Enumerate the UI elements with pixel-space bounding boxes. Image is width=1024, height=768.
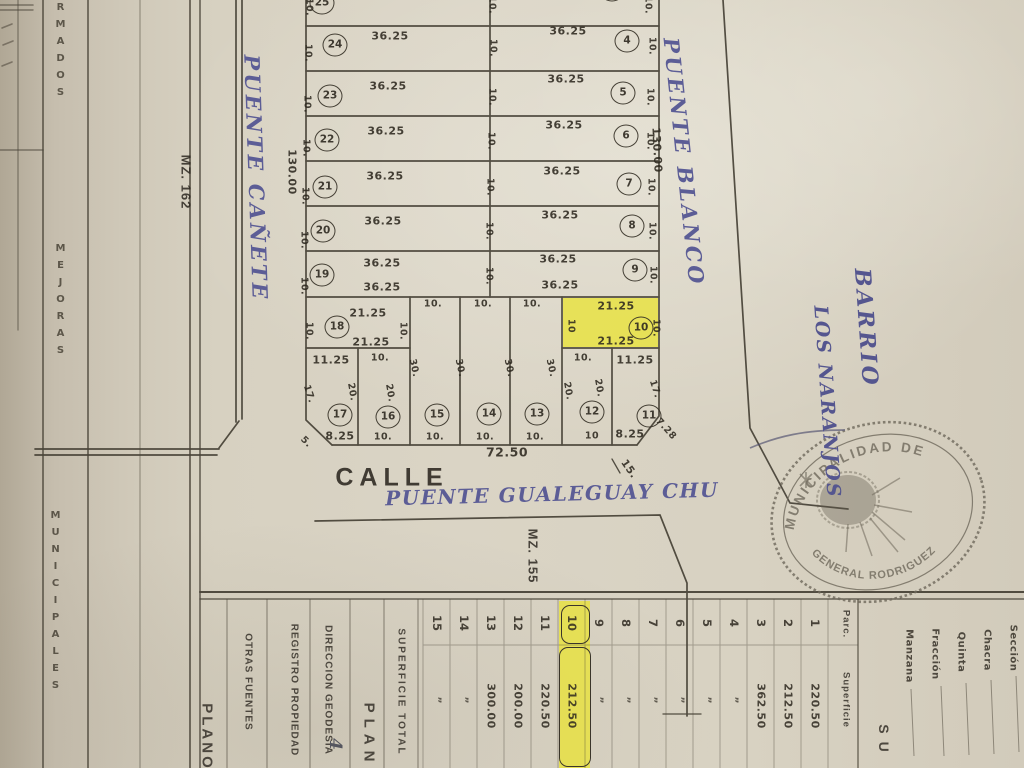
table-superficie-value-3: 362.50 <box>755 683 768 728</box>
form-label-direccion-geodesia: DIRECCION GEODESIA <box>323 625 334 755</box>
dimension-label: 8.25 <box>325 430 354 443</box>
table-parc-number-5: 5 <box>700 619 714 627</box>
dimension-label: 36.25 <box>541 209 578 222</box>
dimension-label: 10. <box>487 0 498 14</box>
svg-text:GENERAL RODRIGUEZ: GENERAL RODRIGUEZ <box>807 514 942 601</box>
table-superficie-value-5: ” <box>701 696 714 703</box>
dimension-label: 10. <box>398 322 409 340</box>
table-parc-number-10: 10 <box>565 615 579 631</box>
table-superficie-value-6: ” <box>674 696 687 703</box>
parcel-number-22: 22 <box>315 129 340 152</box>
parcel-number-3: 3 <box>600 0 625 2</box>
dimension-label: 17. <box>647 379 663 400</box>
form-handwritten-note: 4 <box>325 738 345 750</box>
dimension-label: 10. <box>371 353 389 364</box>
stamp-star-icon <box>800 472 812 488</box>
dimension-label: 36.25 <box>539 253 576 266</box>
stamp-sun-emblem <box>800 472 912 556</box>
dimension-label: 20. <box>561 381 575 401</box>
table-superficie-value-9: ” <box>593 696 606 703</box>
dimension-label: 10. <box>647 37 658 55</box>
parcel-number-6: 6 <box>614 125 639 148</box>
table-superficie-value-2: 212.50 <box>782 683 795 728</box>
table-parc-number-12: 12 <box>511 615 525 631</box>
table-parc-number-9: 9 <box>592 619 606 627</box>
dimension-label: 10. <box>299 277 310 295</box>
barrio-note-line2: LOS NARANJOS <box>809 305 844 500</box>
table-superficie-value-14: ” <box>458 696 471 703</box>
field-label-5: Manzana <box>904 629 915 683</box>
dimension-label: 36.25 <box>369 80 406 93</box>
dimension-label: 10. <box>645 132 656 150</box>
dimension-label: 5. <box>298 434 314 450</box>
margin-label-mejoras: MEJORAS <box>55 243 66 362</box>
dimension-label: 30. <box>453 358 468 378</box>
dimension-label: 10. <box>424 299 442 310</box>
dimension-label: 10. <box>485 178 496 196</box>
table-superficie-value-1: 220.50 <box>809 683 822 728</box>
barrio-note-line1: BARRIO <box>849 267 883 388</box>
form-label-plan: PLAN <box>361 703 378 768</box>
table-superficie-value-7: ” <box>647 696 660 703</box>
dimension-label: 10. <box>299 231 310 249</box>
dimension-label: 36.25 <box>543 165 580 178</box>
dimension-label: 20. <box>345 382 359 402</box>
stamp-text-top: MUNICIPALIDAD DE <box>765 425 940 535</box>
parcel-number-17: 17 <box>328 404 353 427</box>
dimension-label: 15. <box>618 457 639 480</box>
dimension-label: 21.25 <box>352 336 389 349</box>
parcel-number-18: 18 <box>325 316 350 339</box>
parcel-number-8: 8 <box>620 215 645 238</box>
parcel-number-13: 13 <box>525 403 550 426</box>
form-label-registro-propiedad: REGISTRO PROPIEDAD <box>289 624 300 756</box>
block-label-mz162: MZ. 162 <box>179 155 194 210</box>
dimension-label: 10. <box>484 267 495 285</box>
block-label-mz155: MZ. 155 <box>526 529 541 584</box>
scanned-plat-document: MUNICIPALIDAD DE GENERAL RODRIGUEZ <box>0 0 1024 768</box>
dimension-label: 21.25 <box>597 335 634 348</box>
parcel-number-4: 4 <box>615 30 640 53</box>
dimension-label: 10. <box>476 432 494 443</box>
dimension-label: 10. <box>303 44 314 62</box>
dimension-label: 10. <box>374 432 392 443</box>
dimension-label: 11.25 <box>616 354 653 367</box>
parcel-number-5: 5 <box>611 82 636 105</box>
dimension-label: 36.25 <box>545 119 582 132</box>
parcel-number-24: 24 <box>323 34 348 57</box>
table-parc-number-4: 4 <box>727 619 741 627</box>
field-label-2: Chacra <box>982 629 993 671</box>
table-superficie-value-11: 220.50 <box>539 683 552 728</box>
dimension-label: 10. <box>304 322 315 340</box>
block-length-left: 130.00 <box>286 149 299 194</box>
table-superficie-value-8: ” <box>620 696 633 703</box>
dimension-label: 10 <box>566 319 577 333</box>
field-label-1: Sección <box>1008 625 1019 672</box>
dimension-label: 10. <box>488 39 499 57</box>
dimension-label: 36.25 <box>363 281 400 294</box>
table-parc-number-2: 2 <box>781 619 795 627</box>
dimension-label: 36.25 <box>366 170 403 183</box>
form-label-superficie-total: SUPERFICIE TOTAL <box>396 628 407 755</box>
dimension-label: 36.25 <box>363 257 400 270</box>
table-superficie-value-15: ” <box>431 696 444 703</box>
dimension-label: 10. <box>648 266 659 284</box>
svg-text:MUNICIPALIDAD DE: MUNICIPALIDAD DE <box>765 425 940 535</box>
table-superficie-value-10: 212.50 <box>566 683 579 728</box>
street-label-puente-blanco: PUENTE BLANCO <box>658 36 709 288</box>
street-label-puente-canete: PUENTE CAÑETE <box>239 54 273 302</box>
dimension-label: 21.25 <box>597 300 634 313</box>
table-parc-number-1: 1 <box>808 619 822 627</box>
dimension-label: 36.25 <box>364 215 401 228</box>
parcel-number-19: 19 <box>310 264 335 287</box>
dimension-label: 10. <box>474 299 492 310</box>
table-superficie-value-4: ” <box>728 696 741 703</box>
table-superficie-value-13: 300.00 <box>485 683 498 728</box>
table-parc-number-15: 15 <box>430 615 444 631</box>
parcel-number-7: 7 <box>617 173 642 196</box>
dimension-label: 30. <box>544 358 559 378</box>
dimension-label: 10. <box>302 95 313 113</box>
table-parc-number-13: 13 <box>484 615 498 631</box>
dimension-label: 10. <box>301 139 312 157</box>
parcel-number-23: 23 <box>318 85 343 108</box>
dimension-label: 10. <box>643 0 654 14</box>
field-label-3: Quinta <box>956 632 967 673</box>
form-label-plano: PLANO <box>199 703 216 768</box>
margin-label-armados: RMADOS <box>55 2 66 104</box>
parcel-number-10: 10 <box>629 317 654 340</box>
table-parc-number-8: 8 <box>619 619 633 627</box>
table-parc-number-14: 14 <box>457 615 471 631</box>
table-parc-number-11: 11 <box>538 615 552 631</box>
parcel-number-12: 12 <box>580 401 605 424</box>
margin-label-municipales: MUNICIPALES <box>50 510 61 697</box>
dimension-label: 36.25 <box>371 30 408 43</box>
dimension-label: 36.25 <box>541 279 578 292</box>
parcel-number-21: 21 <box>313 176 338 199</box>
parcel-number-16: 16 <box>376 406 401 429</box>
form-label-su: SU <box>876 724 892 759</box>
dimension-label: 20. <box>383 383 397 403</box>
dimension-label: 10. <box>523 299 541 310</box>
dimension-label: 36.25 <box>549 25 586 38</box>
table-parc-number-3: 3 <box>754 619 768 627</box>
table-header-parc: Parc. <box>841 610 852 638</box>
dimension-label: 21.25 <box>349 307 386 320</box>
dimension-label: 10. <box>300 187 311 205</box>
table-superficie-value-12: 200.00 <box>512 683 525 728</box>
table-parc-number-7: 7 <box>646 619 660 627</box>
field-label-4: Fracción <box>930 628 941 679</box>
dimension-label: 10. <box>647 222 658 240</box>
dimension-label: 30. <box>407 358 422 378</box>
dimension-label: 36.25 <box>367 125 404 138</box>
table-parc-number-6: 6 <box>673 619 687 627</box>
dimension-label: 20. <box>592 378 606 398</box>
dimension-label: 30. <box>502 358 517 378</box>
dimension-label: 10. <box>645 88 656 106</box>
dimension-label: 10. <box>486 132 497 150</box>
parcel-number-9: 9 <box>623 259 648 282</box>
dimension-label: 11.25 <box>312 354 349 367</box>
dimension-label: 17. <box>301 384 317 405</box>
dimension-label: 72.50 <box>486 445 528 460</box>
dimension-label: 10. <box>426 432 444 443</box>
municipal-stamp: MUNICIPALIDAD DE GENERAL RODRIGUEZ <box>749 396 1007 627</box>
parcel-number-11: 11 <box>637 405 662 428</box>
parcel-number-15: 15 <box>425 404 450 427</box>
dimension-label: 8.25 <box>615 428 644 441</box>
parcel-number-20: 20 <box>311 220 336 243</box>
table-header-superficie: Superficie <box>841 672 852 728</box>
stamp-text-bottom: GENERAL RODRIGUEZ <box>807 514 942 601</box>
dimension-label: 10. <box>487 88 498 106</box>
parcel-number-14: 14 <box>477 403 502 426</box>
dimension-label: 10. <box>646 178 657 196</box>
dimension-label: 10 <box>585 431 599 442</box>
form-label-otras-fuentes: OTRAS FUENTES <box>243 633 254 730</box>
dimension-label: 10. <box>574 353 592 364</box>
dimension-label: 10. <box>526 432 544 443</box>
dimension-label: 36.25 <box>547 73 584 86</box>
dimension-label: 10. <box>484 222 495 240</box>
